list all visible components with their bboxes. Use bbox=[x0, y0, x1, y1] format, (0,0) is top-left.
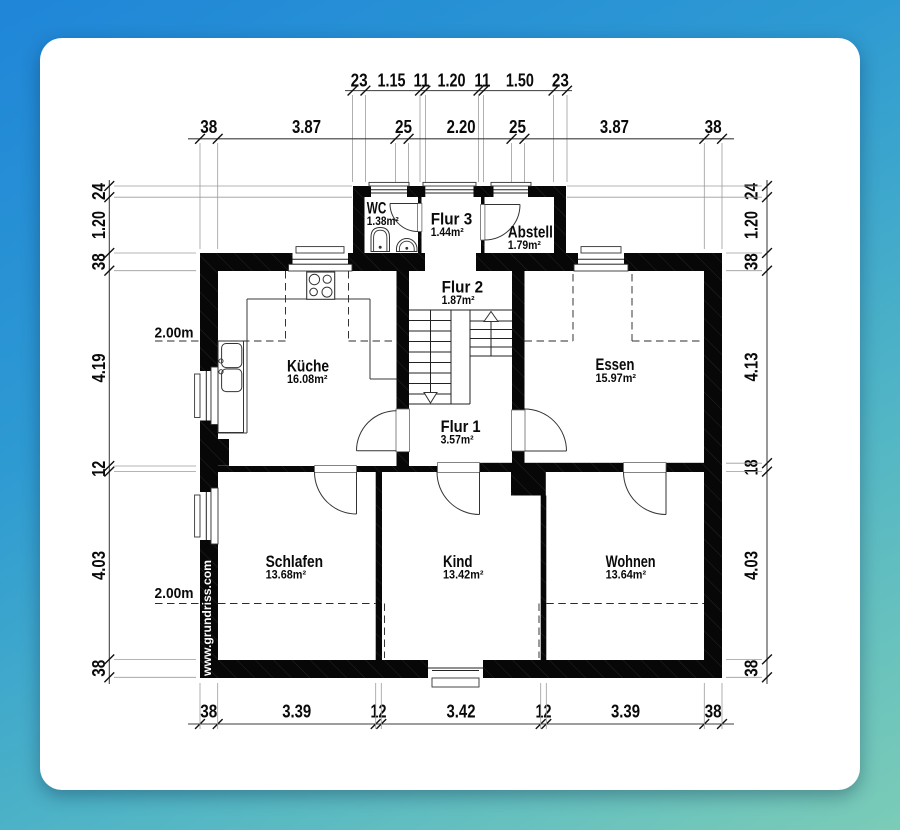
svg-text:38: 38 bbox=[200, 117, 217, 137]
svg-text:38: 38 bbox=[742, 660, 762, 677]
svg-text:38: 38 bbox=[742, 253, 762, 270]
svg-text:3.87: 3.87 bbox=[600, 117, 629, 137]
svg-text:2.00m: 2.00m bbox=[155, 586, 194, 602]
svg-text:2.00m: 2.00m bbox=[155, 326, 194, 342]
svg-text:1.20: 1.20 bbox=[89, 211, 109, 239]
svg-text:13.68m²: 13.68m² bbox=[266, 568, 307, 581]
svg-text:4.03: 4.03 bbox=[742, 551, 762, 580]
svg-text:11: 11 bbox=[414, 71, 430, 91]
svg-text:1.50: 1.50 bbox=[506, 71, 534, 91]
svg-text:25: 25 bbox=[395, 117, 412, 137]
svg-text:38: 38 bbox=[89, 253, 109, 270]
svg-text:13.64m²: 13.64m² bbox=[606, 569, 647, 582]
svg-text:3.39: 3.39 bbox=[611, 702, 640, 722]
svg-text:23: 23 bbox=[552, 71, 569, 91]
svg-text:3.39: 3.39 bbox=[282, 702, 311, 722]
svg-text:www.grundriss.com: www.grundriss.com bbox=[200, 560, 214, 677]
svg-text:1.44m²: 1.44m² bbox=[431, 226, 464, 239]
svg-text:38: 38 bbox=[705, 702, 722, 722]
svg-text:12: 12 bbox=[89, 461, 109, 477]
svg-text:1.38m²: 1.38m² bbox=[367, 215, 399, 228]
svg-text:23: 23 bbox=[351, 71, 368, 91]
svg-text:12: 12 bbox=[371, 702, 387, 722]
svg-text:24: 24 bbox=[89, 183, 109, 200]
svg-text:3.87: 3.87 bbox=[292, 117, 321, 137]
svg-text:1.79m²: 1.79m² bbox=[508, 239, 541, 252]
svg-text:38: 38 bbox=[200, 702, 217, 722]
svg-text:3.57m²: 3.57m² bbox=[441, 434, 474, 447]
svg-text:1.15: 1.15 bbox=[378, 71, 406, 91]
svg-text:13.42m²: 13.42m² bbox=[443, 568, 484, 581]
svg-text:12: 12 bbox=[536, 702, 552, 722]
svg-text:1.20: 1.20 bbox=[742, 211, 762, 239]
svg-text:4.03: 4.03 bbox=[89, 551, 109, 580]
svg-text:11: 11 bbox=[474, 71, 490, 91]
svg-text:2.20: 2.20 bbox=[447, 117, 476, 137]
svg-text:38: 38 bbox=[89, 660, 109, 677]
svg-text:1.20: 1.20 bbox=[438, 71, 466, 91]
svg-text:3.42: 3.42 bbox=[447, 702, 476, 722]
svg-text:25: 25 bbox=[509, 117, 526, 137]
svg-text:4.19: 4.19 bbox=[89, 354, 109, 383]
svg-text:15.97m²: 15.97m² bbox=[596, 372, 637, 385]
svg-text:38: 38 bbox=[705, 117, 722, 137]
svg-text:18: 18 bbox=[742, 459, 762, 475]
svg-text:1.87m²: 1.87m² bbox=[442, 294, 475, 307]
svg-text:4.13: 4.13 bbox=[742, 353, 762, 382]
svg-text:16.08m²: 16.08m² bbox=[287, 373, 328, 386]
